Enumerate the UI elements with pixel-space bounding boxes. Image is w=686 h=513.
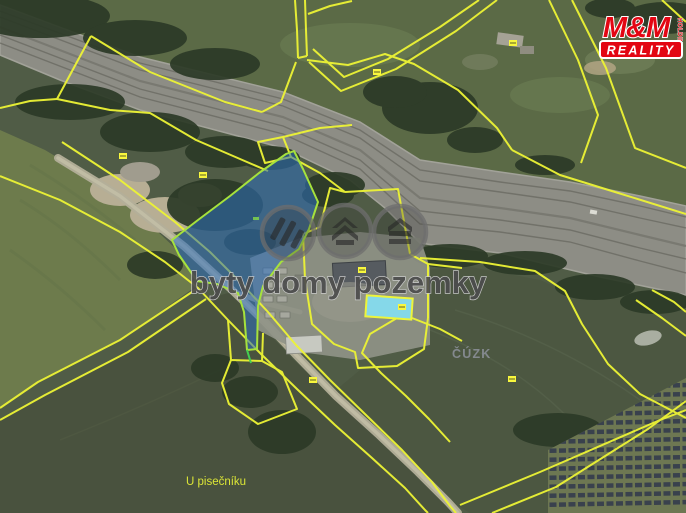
street-label: U pisečníku xyxy=(186,476,246,488)
logo-reality-text: REALITY xyxy=(607,44,676,58)
house-roof-icon xyxy=(319,205,371,257)
mm-stripes-icon xyxy=(262,207,314,259)
map-viewport[interactable]: ČÚZK U pisečníku xyxy=(0,0,686,513)
cuzk-label: ČÚZK xyxy=(452,346,492,361)
stacked-house-icon xyxy=(374,206,426,258)
parcel-number-green xyxy=(253,217,259,220)
watermark-text: byty domy pozemky xyxy=(190,265,487,300)
logo-mm-text: M&M xyxy=(603,12,671,44)
aerial-map[interactable]: ČÚZK U pisečníku xyxy=(0,0,686,513)
